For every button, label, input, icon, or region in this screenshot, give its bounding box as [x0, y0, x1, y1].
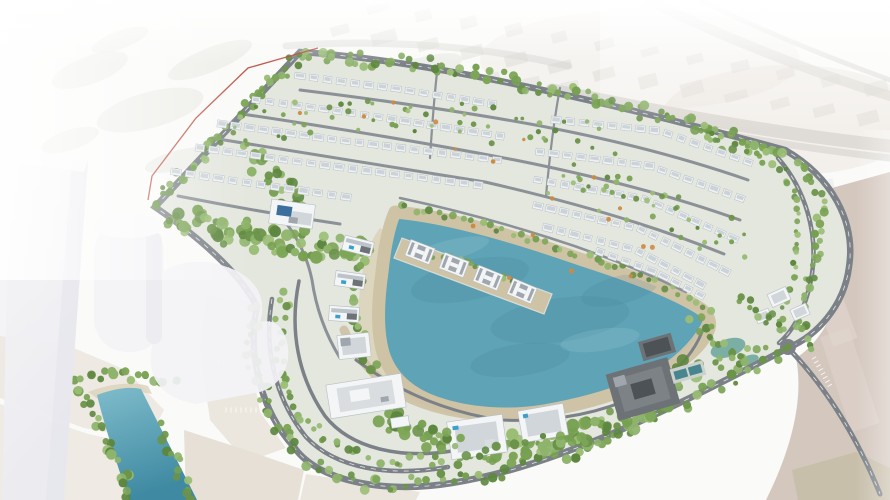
tree — [95, 415, 102, 422]
tree — [325, 466, 333, 474]
tree — [547, 92, 552, 97]
tree — [554, 89, 560, 95]
tree — [696, 226, 700, 230]
villa — [572, 210, 582, 219]
tree — [707, 307, 715, 315]
tree — [562, 454, 572, 464]
tree — [733, 381, 738, 386]
tree — [633, 196, 639, 202]
masterplan-aerial-render — [0, 0, 890, 500]
tree — [747, 296, 754, 303]
tree — [729, 239, 734, 244]
villa — [560, 180, 570, 189]
tree — [793, 323, 801, 331]
tree — [569, 269, 574, 274]
tree — [347, 101, 352, 106]
tree — [298, 111, 302, 115]
tree — [403, 484, 409, 490]
fade-top-right — [600, 0, 890, 130]
villa-roof — [329, 192, 335, 197]
tree — [442, 428, 451, 437]
tree — [818, 228, 825, 235]
tree — [604, 263, 611, 270]
tree — [452, 443, 458, 449]
tree — [267, 398, 272, 403]
tree — [707, 379, 716, 388]
tree — [86, 399, 95, 408]
tree — [409, 105, 413, 109]
tree — [356, 128, 360, 132]
villa — [284, 185, 295, 193]
villa — [405, 87, 415, 95]
tree — [489, 457, 497, 465]
tree — [562, 120, 566, 124]
tree — [613, 151, 618, 156]
tree — [661, 286, 668, 293]
tree — [336, 234, 345, 243]
villa — [533, 176, 542, 184]
tree — [685, 315, 693, 323]
tree — [729, 355, 736, 362]
tree — [793, 206, 800, 213]
tree — [697, 313, 705, 321]
tree — [455, 64, 464, 73]
tree — [290, 438, 298, 446]
villa-roof — [280, 101, 286, 105]
tree — [509, 452, 518, 461]
tree — [806, 284, 815, 293]
tree — [277, 297, 283, 303]
tree — [388, 487, 394, 493]
villa-roof — [567, 119, 574, 124]
villa-roof — [363, 168, 371, 173]
villa — [391, 85, 402, 92]
tree — [498, 474, 505, 481]
tree — [687, 217, 692, 222]
tree — [470, 70, 480, 80]
mansion — [447, 414, 508, 459]
tree — [472, 106, 478, 112]
tree — [527, 134, 533, 140]
tree — [338, 101, 344, 107]
tree — [524, 238, 530, 244]
tree — [707, 334, 713, 340]
tree — [184, 476, 192, 484]
tree — [89, 411, 95, 417]
tree — [618, 206, 622, 210]
tree — [423, 111, 429, 117]
tree — [578, 417, 591, 430]
tree — [265, 171, 273, 179]
tree — [804, 335, 811, 342]
tree — [614, 429, 623, 438]
tree — [597, 209, 601, 213]
tree — [418, 420, 426, 428]
tree — [489, 140, 495, 146]
tree — [794, 242, 799, 247]
fade-left — [0, 0, 250, 280]
tree — [791, 274, 798, 281]
tree — [763, 345, 769, 351]
tree — [794, 218, 800, 224]
tree — [585, 89, 591, 95]
tree — [512, 76, 522, 86]
shore-compound — [329, 305, 360, 322]
tree — [693, 299, 700, 306]
villa-roof — [324, 77, 331, 82]
villa — [445, 177, 455, 185]
tree — [277, 134, 281, 138]
tree — [449, 107, 455, 113]
tree — [704, 134, 711, 141]
tree — [280, 381, 288, 389]
tree — [552, 127, 558, 133]
tree — [457, 120, 462, 125]
tree — [453, 147, 456, 150]
villa — [271, 127, 282, 136]
tree — [811, 230, 819, 238]
villa — [413, 119, 424, 127]
villa — [562, 152, 572, 159]
tree — [263, 409, 272, 418]
tree — [621, 194, 626, 199]
villa — [264, 154, 275, 162]
tree — [546, 191, 550, 195]
tree — [720, 339, 728, 347]
tree — [262, 109, 266, 113]
villa-roof — [474, 182, 481, 187]
tree — [754, 313, 762, 321]
tree — [753, 345, 761, 353]
tree — [365, 98, 371, 104]
tree — [462, 451, 471, 460]
tree — [353, 446, 361, 454]
tree — [777, 148, 787, 158]
tree — [728, 145, 737, 154]
villa — [589, 155, 601, 162]
tree — [437, 445, 446, 454]
tree — [370, 102, 374, 106]
tree — [429, 462, 436, 469]
mansion-part — [452, 426, 458, 431]
villa — [389, 171, 399, 179]
tree — [794, 158, 802, 166]
villa-roof — [383, 143, 390, 148]
villa — [298, 186, 310, 195]
tree — [812, 242, 820, 250]
tree — [520, 117, 524, 121]
tree — [598, 259, 605, 266]
tree — [281, 229, 293, 241]
tree — [316, 467, 323, 474]
tree — [393, 123, 398, 128]
tree — [813, 254, 822, 263]
tree — [254, 105, 258, 109]
tree — [279, 288, 287, 296]
villa — [410, 146, 420, 154]
tree — [801, 296, 807, 302]
tree — [483, 75, 492, 84]
tree — [320, 436, 326, 442]
shore-compound-part — [347, 313, 357, 320]
villa-roof — [356, 140, 362, 144]
tree — [332, 474, 342, 484]
tree — [778, 328, 783, 333]
tree — [344, 445, 353, 454]
tree — [257, 397, 263, 403]
villa — [446, 93, 455, 101]
villa — [548, 150, 559, 158]
tree — [430, 437, 438, 445]
tree — [317, 459, 324, 466]
villa-roof — [619, 160, 625, 164]
tree — [97, 376, 104, 383]
tree — [414, 209, 421, 216]
villa — [292, 158, 302, 165]
villa — [336, 78, 346, 86]
tree — [499, 226, 504, 231]
villa — [630, 160, 641, 168]
tree — [449, 212, 457, 220]
tree — [348, 471, 355, 478]
tree — [537, 81, 542, 86]
tree — [119, 478, 128, 487]
tree — [781, 347, 786, 352]
tree — [522, 138, 525, 141]
tree — [481, 477, 489, 485]
villa — [440, 123, 452, 132]
tree — [421, 442, 432, 453]
villa-roof — [411, 147, 418, 152]
tree — [557, 247, 563, 253]
villa — [270, 183, 280, 191]
tree — [822, 198, 828, 204]
tree — [298, 251, 309, 262]
tree — [272, 169, 282, 179]
pool-clubhouse-part — [276, 205, 292, 217]
tree — [74, 386, 82, 394]
tree — [497, 78, 503, 84]
tree — [296, 238, 306, 248]
tree — [794, 232, 800, 238]
tree — [750, 141, 760, 151]
tree — [360, 485, 370, 495]
villa — [323, 76, 332, 84]
tree — [107, 367, 116, 376]
tree — [776, 321, 782, 327]
tree — [482, 446, 490, 454]
tree — [542, 238, 549, 245]
tree — [683, 401, 691, 409]
tree — [174, 466, 182, 474]
tree — [808, 346, 814, 352]
tree — [507, 276, 511, 280]
villa — [576, 153, 587, 161]
villa — [258, 126, 269, 133]
villa — [355, 139, 364, 147]
tree — [605, 175, 611, 181]
tree — [808, 179, 814, 185]
villa — [459, 179, 469, 187]
tree — [606, 408, 614, 416]
tree — [115, 457, 122, 464]
tree — [572, 253, 577, 258]
tree — [367, 365, 376, 374]
tree — [355, 323, 362, 330]
shore-compound-part — [335, 315, 340, 319]
tree — [585, 119, 589, 123]
tree — [594, 439, 601, 446]
tree — [752, 307, 759, 314]
tree — [590, 146, 594, 150]
tree — [652, 204, 656, 208]
tree — [768, 160, 776, 168]
tree — [101, 367, 108, 374]
tree — [729, 215, 735, 221]
villa — [350, 79, 359, 87]
villa — [432, 91, 442, 99]
tree — [796, 211, 800, 215]
tree — [816, 220, 825, 229]
tree — [305, 418, 311, 424]
villa — [395, 144, 405, 152]
tree — [317, 423, 323, 429]
villa — [419, 89, 429, 96]
tree — [437, 469, 446, 478]
tree — [763, 320, 769, 326]
tree — [742, 233, 746, 237]
villa — [250, 152, 261, 160]
villa — [467, 127, 478, 135]
tree — [759, 160, 765, 166]
tree — [727, 130, 735, 138]
amenity-building-part — [340, 337, 351, 346]
tree — [287, 446, 296, 455]
tree — [592, 175, 597, 180]
villa — [404, 172, 413, 179]
tree — [669, 227, 674, 232]
tree — [291, 248, 299, 256]
tree — [441, 214, 447, 220]
villa — [465, 153, 474, 160]
tree — [700, 305, 706, 311]
tree — [334, 438, 341, 445]
tree — [606, 217, 611, 222]
tree — [281, 135, 287, 141]
tree — [472, 264, 477, 269]
villa — [617, 159, 626, 167]
tree — [820, 208, 829, 217]
villa — [535, 148, 544, 156]
tree — [84, 394, 90, 400]
tree — [301, 461, 311, 471]
villa — [285, 130, 297, 138]
tree — [77, 375, 84, 382]
tree — [472, 64, 479, 71]
villa — [348, 165, 358, 173]
tree — [518, 231, 525, 238]
tree — [644, 198, 650, 204]
tree — [531, 233, 535, 237]
tree — [87, 371, 96, 380]
tree — [747, 305, 752, 310]
tree — [718, 386, 726, 394]
tree — [310, 251, 323, 264]
villa — [333, 163, 344, 171]
tree — [793, 249, 799, 255]
tree — [475, 471, 483, 479]
tree — [432, 453, 439, 460]
tree — [461, 216, 467, 222]
tree — [543, 438, 551, 446]
villa — [319, 161, 330, 169]
tree — [537, 120, 543, 126]
tree — [742, 254, 747, 259]
tree — [121, 367, 129, 375]
tree — [168, 451, 174, 457]
tree — [646, 277, 651, 282]
villa — [306, 160, 316, 167]
tree — [572, 86, 581, 95]
villa — [312, 133, 324, 141]
tree — [806, 276, 813, 283]
tree — [366, 455, 372, 461]
tree — [714, 240, 718, 244]
villa — [305, 104, 315, 111]
tree — [650, 214, 656, 220]
tree — [774, 349, 781, 356]
tree — [282, 315, 288, 321]
tree — [437, 210, 443, 216]
villa — [333, 107, 343, 115]
tree — [810, 262, 816, 268]
tree — [391, 100, 395, 104]
tree — [371, 118, 375, 122]
tree — [698, 383, 707, 392]
tree — [454, 460, 463, 469]
tree — [292, 100, 298, 106]
tree — [514, 117, 518, 121]
tree — [709, 324, 715, 330]
shore-compound-part — [341, 280, 346, 284]
tree — [702, 240, 707, 245]
tree — [471, 224, 476, 229]
tree — [535, 89, 542, 96]
villa-roof — [349, 166, 356, 171]
tree — [612, 264, 618, 270]
villa — [362, 166, 372, 174]
pool-clubhouse-part — [288, 217, 298, 224]
villa — [309, 74, 318, 81]
villa-roof — [433, 177, 439, 182]
villa — [327, 191, 336, 199]
tree — [566, 419, 579, 432]
tree — [330, 115, 335, 120]
tree — [793, 265, 798, 270]
tree — [462, 472, 469, 479]
tree — [615, 174, 621, 180]
tree — [414, 477, 422, 485]
tree — [301, 122, 307, 128]
tree — [712, 359, 718, 365]
tree — [486, 67, 494, 75]
villa — [603, 156, 614, 165]
tree — [304, 111, 308, 115]
tree — [307, 130, 313, 136]
tree — [650, 191, 655, 196]
villa — [368, 141, 379, 149]
tree — [327, 104, 333, 110]
